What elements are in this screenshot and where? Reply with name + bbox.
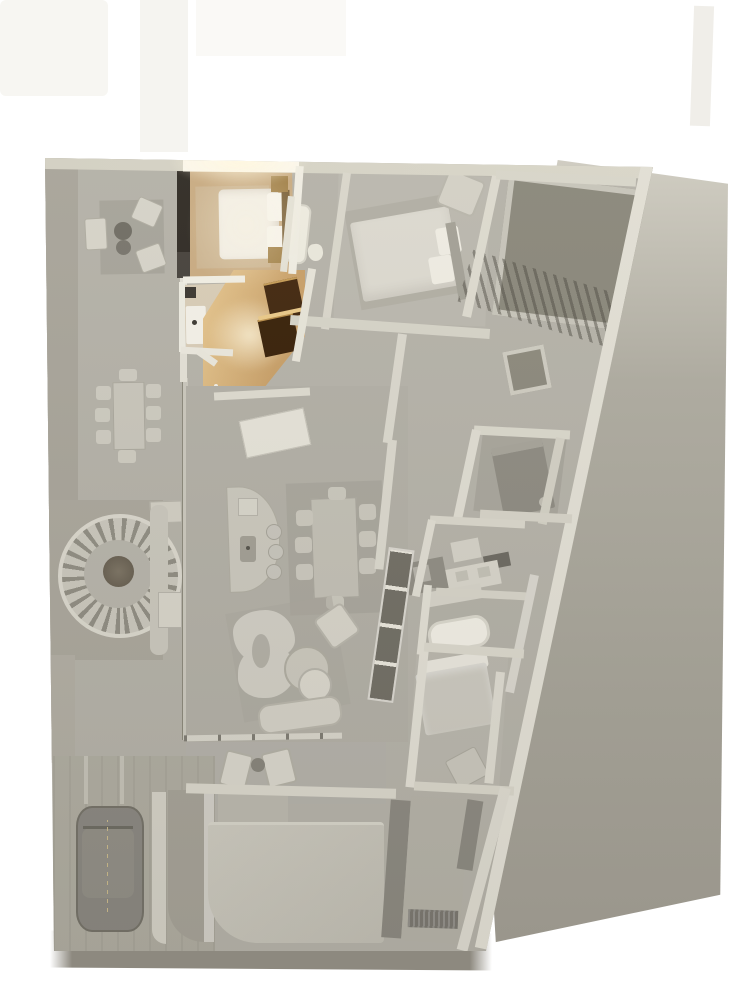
entry-step-path	[218, 792, 288, 822]
bar-stool	[266, 524, 282, 540]
ghost-roof-plane	[140, 0, 188, 152]
garage-post	[84, 756, 88, 804]
dining-chair	[328, 487, 346, 500]
dining-chair	[295, 537, 313, 554]
garden-wall-slab	[208, 822, 384, 943]
car-centerline	[107, 820, 108, 912]
car-windshield	[83, 826, 133, 829]
dining-chair	[95, 408, 110, 422]
ghost-boundary-wall	[690, 6, 714, 127]
faucet	[192, 320, 197, 325]
outdoor-dining-table	[112, 382, 145, 451]
bedroom-light-glow	[186, 160, 306, 290]
garden-path	[150, 505, 168, 655]
dining-chair	[146, 406, 161, 420]
dining-chair	[96, 386, 111, 400]
bed-4-duvet	[415, 662, 497, 736]
gravel-curve	[168, 790, 204, 942]
round-table	[114, 222, 132, 240]
dining-chair	[359, 504, 377, 521]
ghost-roof-plane	[0, 0, 108, 96]
dining-chair	[146, 428, 161, 442]
side-table	[251, 758, 265, 772]
kitchen-faucet	[246, 546, 250, 550]
bar-stool	[268, 544, 284, 560]
dining-chair	[296, 564, 314, 581]
garage-post	[120, 756, 124, 804]
dining-chair	[119, 369, 137, 381]
planter	[158, 592, 182, 628]
dining-chair	[296, 510, 314, 527]
cooktop	[238, 498, 258, 516]
dining-chair	[146, 384, 161, 398]
curved-sofa-hole	[252, 634, 270, 668]
door-mat	[408, 909, 459, 929]
dining-chair	[96, 430, 111, 444]
ghost-roof-plane	[196, 0, 346, 56]
car-roof	[82, 828, 134, 898]
dining-chair	[118, 450, 136, 463]
bar-stool	[266, 564, 282, 580]
floor-plan-render	[0, 0, 730, 1000]
outdoor-chair	[84, 217, 108, 250]
gravel-patch-low	[45, 655, 75, 763]
wall	[179, 282, 185, 352]
planter-square	[502, 344, 552, 395]
curb-band	[152, 792, 166, 944]
round-table	[116, 240, 131, 255]
tree	[103, 556, 134, 587]
dining-table[interactable]	[310, 497, 359, 599]
dining-chair	[359, 531, 377, 548]
